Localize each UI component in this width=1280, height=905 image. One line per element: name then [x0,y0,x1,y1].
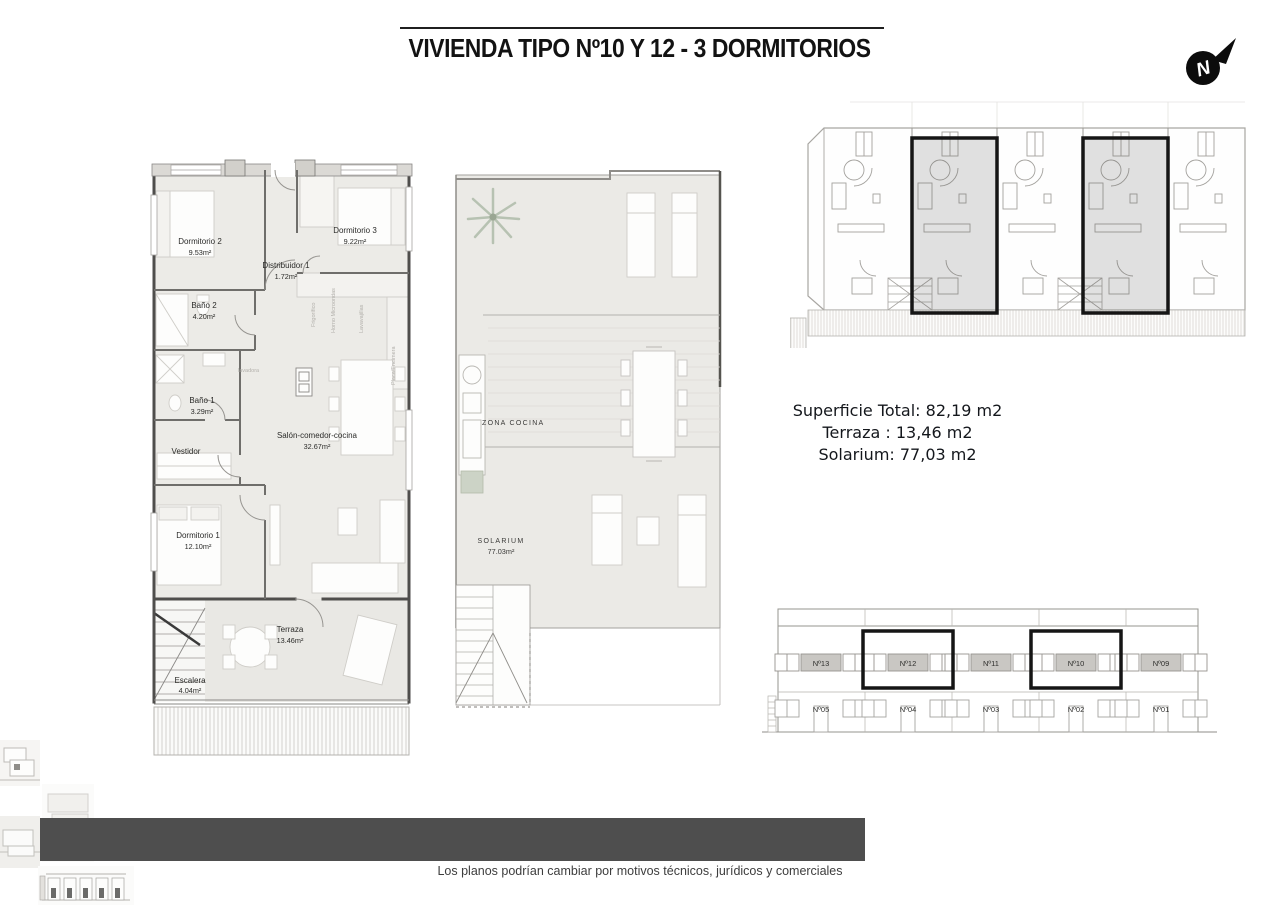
dark-divider-bar [40,818,865,861]
unit-label-13: Nº13 [813,659,830,668]
svg-text:Dormitorio 2: Dormitorio 2 [178,237,222,246]
svg-text:Lavavajillas: Lavavajillas [359,304,365,333]
svg-text:Salón-comedor-cocina: Salón-comedor-cocina [277,431,358,440]
unit-label-09: Nº09 [1153,659,1170,668]
deck-hatching [154,707,409,755]
title-rule [400,27,884,29]
svg-text:Placa/Encimera: Placa/Encimera [391,346,397,385]
floor-plan-level-1: Dormitorio 2 9.53m² Dormitorio 3 9.22m² … [145,155,420,760]
unit-label-05: Nº05 [813,705,830,714]
svg-text:4.04m²: 4.04m² [179,686,202,695]
highlighted-unit-12 [912,138,997,313]
unit-label-11: Nº11 [983,659,999,668]
unit-label-04: Nº04 [900,705,917,714]
unit-label-12: Nº12 [900,659,917,668]
svg-text:4.20m²: 4.20m² [193,312,216,321]
roof-outline [850,102,1245,128]
svg-text:lavadora: lavadora [238,368,260,374]
svg-text:Baño 1: Baño 1 [189,396,215,405]
svg-text:Horno Microondas: Horno Microondas [331,288,337,333]
room-label-vestidor: Vestidor [172,447,201,456]
unit-label-02: Nº02 [1068,705,1085,714]
svg-text:Baño 2: Baño 2 [191,301,217,310]
thumbnail-render-1 [0,740,40,786]
svg-text:13.46m²: 13.46m² [277,636,304,645]
walkway [808,310,1245,336]
solarium-stairs [456,585,530,707]
north-compass-icon: N [1172,30,1244,98]
highlighted-unit-10 [1083,138,1168,313]
svg-text:9.53m²: 9.53m² [189,248,212,257]
top-wall-band [152,160,412,177]
site-plan [790,100,1248,348]
summary-terraza: Terraza : 13,46 m2 [790,422,1005,444]
zona-cocina-label: ZONA COCINA [482,420,545,427]
planter [461,471,483,493]
disclaimer-text: Los planos podrían cambiar por motivos t… [0,864,1280,878]
unit-label-03: Nº03 [983,705,1000,714]
svg-text:12.10m²: 12.10m² [185,542,212,551]
summary-areas: Superficie Total: 82,19 m2 Terraza : 13,… [790,400,1005,466]
svg-text:Dormitorio 1: Dormitorio 1 [176,531,220,540]
unit-label-10: Nº10 [1068,659,1085,668]
page-title: VIVIENDA TIPO Nº10 Y 12 - 3 DORMITORIOS [0,33,1280,64]
outdoor-kitchen [459,355,485,475]
summary-total: Superficie Total: 82,19 m2 [790,400,1005,422]
svg-text:Frigorífico: Frigorífico [311,303,317,327]
svg-text:Terraza: Terraza [277,625,304,634]
svg-text:Vestidor: Vestidor [172,447,201,456]
elevation-drawing: Nº13 Nº12 Nº11 Nº10 Nº09 Nº05 Nº04 Nº03 … [762,600,1217,740]
svg-text:Distribuidor 1: Distribuidor 1 [262,261,310,270]
svg-text:32.67m²: 32.67m² [304,442,331,451]
unit-label-01: Nº01 [1153,705,1170,714]
svg-text:9.22m²: 9.22m² [344,237,367,246]
svg-text:Dormitorio 3: Dormitorio 3 [333,226,377,235]
svg-text:Escalera: Escalera [174,676,206,685]
svg-text:77.03m²: 77.03m² [488,547,515,556]
svg-text:3.29m²: 3.29m² [191,407,214,416]
floor-plan-solarium: ZONA COCINA SOLARIUM 77.03m² [453,165,723,710]
thumbnail-render-3 [0,816,40,868]
summary-solarium: Solarium: 77,03 m2 [790,444,1005,466]
svg-text:1.72m²: 1.72m² [275,272,298,281]
svg-text:SOLARIUM: SOLARIUM [478,538,525,545]
